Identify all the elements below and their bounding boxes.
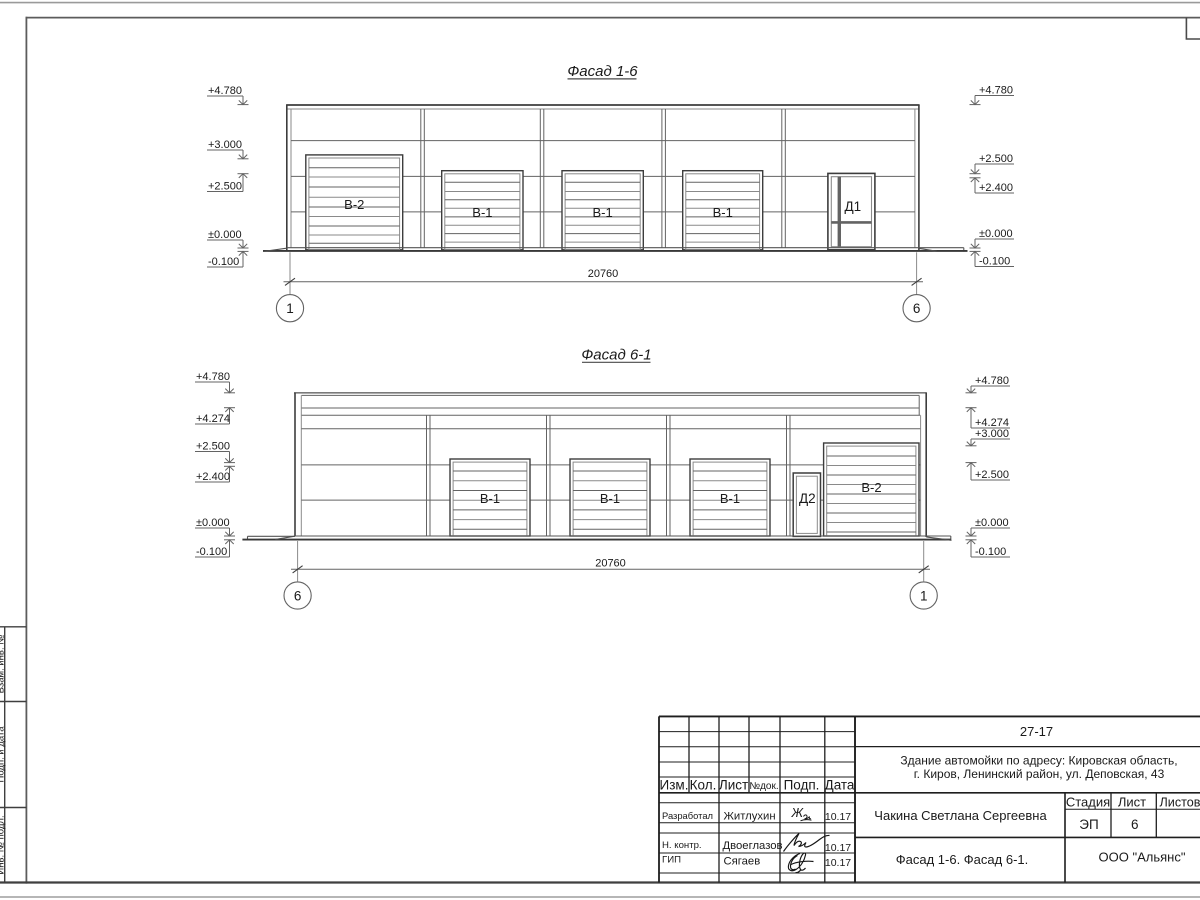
svg-text:Чакина Светлана Сергеевна: Чакина Светлана Сергеевна [874, 808, 1047, 823]
svg-text:20760: 20760 [595, 558, 626, 570]
svg-text:Житлухин: Житлухин [724, 810, 776, 822]
svg-text:Фасад 1-6: Фасад 1-6 [567, 63, 638, 80]
svg-text:г. Киров, Ленинский район, ул.: г. Киров, Ленинский район, ул. Деповская… [914, 767, 1165, 781]
svg-text:Листов: Листов [1160, 795, 1200, 809]
svg-text:Подп. и дата: Подп. и дата [0, 726, 6, 783]
svg-text:№док.: №док. [749, 781, 778, 792]
svg-text:+4.780: +4.780 [979, 84, 1013, 96]
svg-text:В-1: В-1 [600, 491, 620, 506]
svg-text:6: 6 [913, 301, 921, 316]
svg-text:Фасад 6-1: Фасад 6-1 [581, 346, 651, 363]
svg-text:+3.000: +3.000 [975, 428, 1009, 440]
svg-text:+4.274: +4.274 [196, 413, 230, 425]
svg-text:+2.500: +2.500 [196, 440, 230, 452]
svg-text:1: 1 [286, 301, 294, 316]
svg-text:Подп.: Подп. [784, 777, 820, 792]
svg-text:+4.780: +4.780 [196, 371, 230, 383]
svg-text:+2.500: +2.500 [979, 153, 1013, 165]
svg-text:6: 6 [1131, 817, 1139, 832]
svg-text:±0.000: ±0.000 [975, 517, 1009, 529]
svg-text:В-1: В-1 [480, 491, 500, 506]
svg-text:Инв. № подл.: Инв. № подл. [0, 815, 6, 874]
svg-text:-0.100: -0.100 [208, 256, 239, 268]
svg-text:±0.000: ±0.000 [979, 228, 1013, 240]
svg-text:-0.100: -0.100 [196, 546, 227, 558]
svg-text:В-1: В-1 [713, 205, 733, 220]
svg-text:В-1: В-1 [592, 205, 612, 220]
svg-text:Разработал: Разработал [662, 810, 713, 821]
svg-text:Двоеглазов: Двоеглазов [723, 840, 783, 852]
svg-text:+3.000: +3.000 [208, 139, 242, 151]
svg-text:+2.400: +2.400 [196, 471, 230, 483]
svg-text:10.17: 10.17 [825, 842, 851, 854]
svg-text:+4.780: +4.780 [975, 375, 1009, 387]
svg-text:-0.100: -0.100 [975, 546, 1006, 558]
svg-text:+2.500: +2.500 [975, 469, 1009, 481]
svg-text:Изм.: Изм. [660, 777, 689, 792]
svg-text:1: 1 [920, 588, 928, 603]
svg-text:Д2: Д2 [799, 491, 816, 506]
svg-text:20760: 20760 [588, 268, 619, 280]
svg-text:Взам. инв. №: Взам. инв. № [0, 635, 6, 694]
svg-text:В-2: В-2 [861, 480, 881, 495]
svg-text:В-1: В-1 [720, 491, 740, 506]
svg-text:ГИП: ГИП [662, 855, 681, 866]
svg-text:10.17: 10.17 [825, 857, 851, 869]
svg-text:-0.100: -0.100 [979, 255, 1010, 267]
svg-text:Фасад 1-6. Фасад 6-1.: Фасад 1-6. Фасад 6-1. [896, 852, 1029, 867]
svg-text:Здание автомойки по адресу: Ки: Здание автомойки по адресу: Кировская об… [900, 753, 1177, 767]
svg-text:Д1: Д1 [844, 199, 861, 214]
svg-text:В-1: В-1 [472, 205, 492, 220]
svg-text:±0.000: ±0.000 [196, 517, 230, 529]
svg-text:+2.500: +2.500 [208, 180, 242, 192]
svg-text:В-2: В-2 [344, 197, 364, 212]
svg-text:Сягаев: Сягаев [724, 856, 761, 868]
svg-text:+2.400: +2.400 [979, 182, 1013, 194]
svg-text:Ж: Ж [791, 806, 805, 820]
svg-text:±0.000: ±0.000 [208, 229, 242, 241]
svg-text:Лист: Лист [719, 777, 748, 792]
svg-text:Н. контр.: Н. контр. [662, 840, 702, 851]
svg-text:ЭП: ЭП [1079, 817, 1098, 832]
svg-text:10.17: 10.17 [825, 811, 851, 823]
svg-text:Дата: Дата [825, 777, 855, 792]
svg-text:+4.780: +4.780 [208, 85, 242, 97]
svg-text:Лист: Лист [1118, 794, 1146, 809]
svg-text:27-17: 27-17 [1020, 724, 1053, 739]
svg-text:6: 6 [294, 588, 302, 603]
svg-text:Стадия: Стадия [1066, 794, 1110, 809]
svg-text:ООО "Альянс": ООО "Альянс" [1099, 849, 1186, 864]
svg-text:Кол.: Кол. [690, 777, 717, 792]
